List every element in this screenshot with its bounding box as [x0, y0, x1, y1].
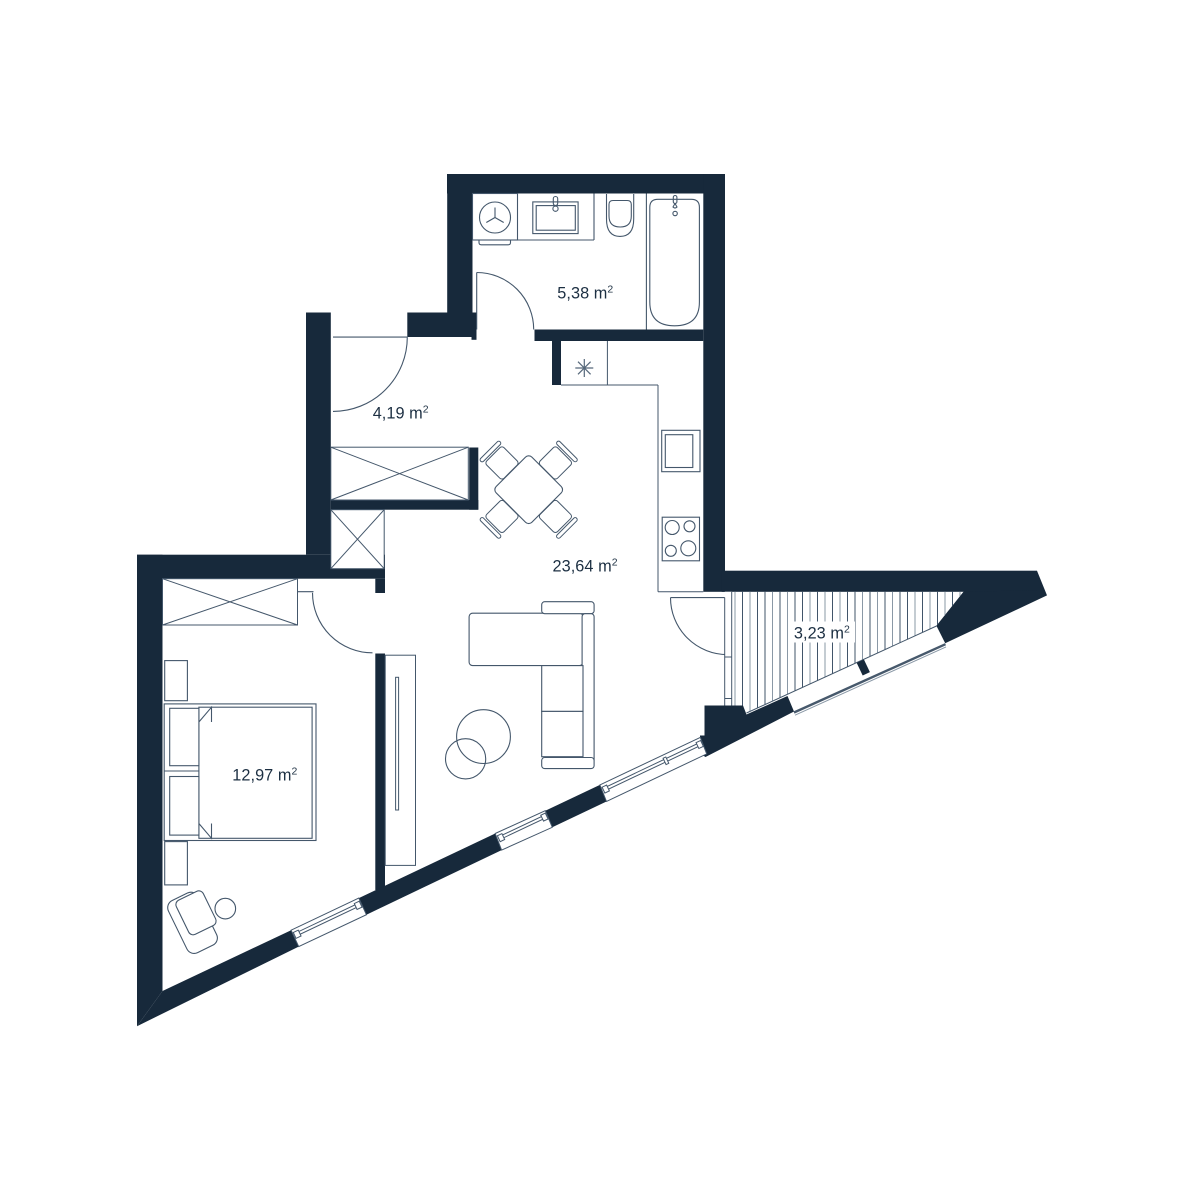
svg-text:3,23 m2: 3,23 m2 [794, 623, 850, 642]
svg-text:23,64 m2: 23,64 m2 [553, 556, 618, 575]
svg-text:4,19 m2: 4,19 m2 [373, 404, 429, 423]
svg-text:5,38 m2: 5,38 m2 [557, 284, 613, 303]
svg-text:12,97 m2: 12,97 m2 [232, 766, 297, 785]
